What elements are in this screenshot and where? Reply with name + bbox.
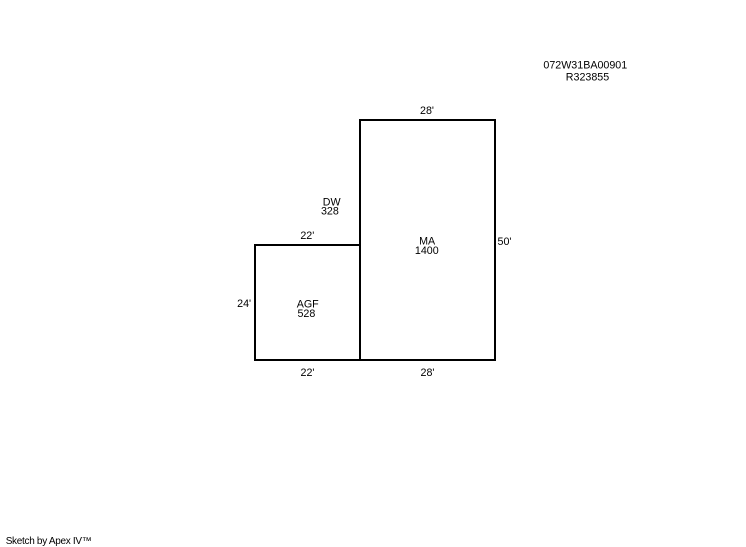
svg-text:24': 24' xyxy=(237,298,251,310)
svg-text:28': 28' xyxy=(421,367,435,379)
svg-text:328: 328 xyxy=(321,206,339,218)
svg-text:1400: 1400 xyxy=(415,245,439,257)
svg-text:072W31BA00901: 072W31BA00901 xyxy=(543,60,627,72)
svg-text:50': 50' xyxy=(498,236,512,248)
svg-text:R323855: R323855 xyxy=(566,72,609,84)
svg-text:Sketch by Apex IV™: Sketch by Apex IV™ xyxy=(6,536,92,547)
svg-text:22': 22' xyxy=(300,230,314,242)
svg-text:28': 28' xyxy=(420,105,434,117)
svg-text:22': 22' xyxy=(301,367,315,379)
svg-text:528: 528 xyxy=(297,308,315,320)
